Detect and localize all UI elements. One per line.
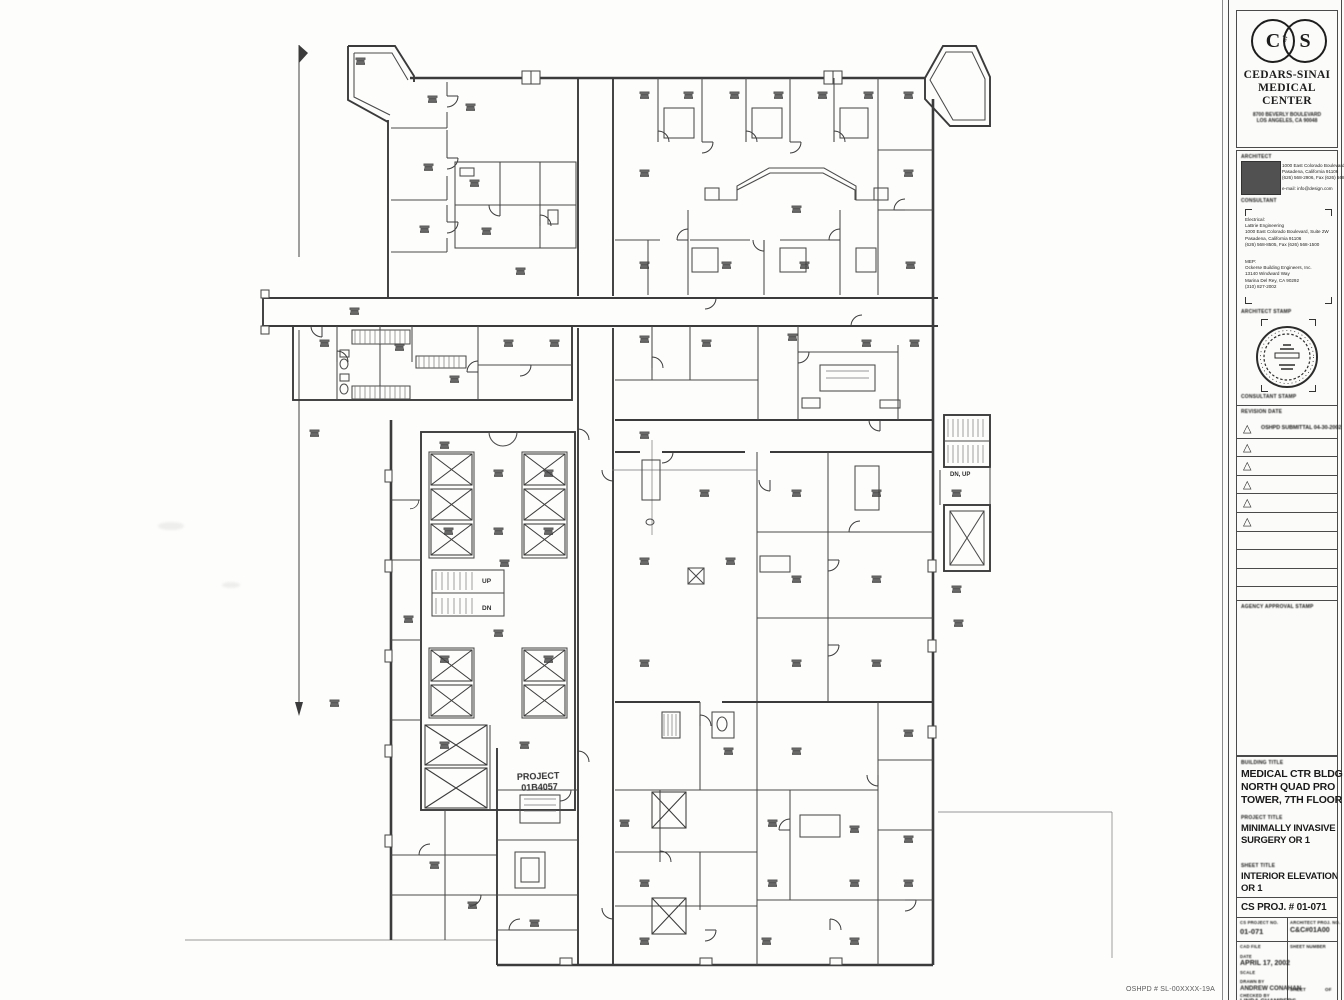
divider: [1237, 897, 1337, 898]
crop-tick: [1261, 385, 1268, 392]
architect-proj-no-value: C&C#01A00: [1290, 927, 1330, 934]
corridor-vertical: [578, 78, 613, 965]
sheet-divider-line: [1222, 0, 1223, 1000]
logo-box: C S ⚕ CEDARS-SINAI MEDICAL CENTER 8700 B…: [1236, 10, 1338, 148]
architect-box: ARCHITECT 1000 East Colorado Boulevard, …: [1236, 150, 1338, 407]
stair2-label: DN, UP: [950, 472, 970, 478]
architect-seal: [1253, 323, 1321, 391]
building-title-label: BUILDING TITLE: [1241, 760, 1283, 766]
cs-project-no-label: CS PROJECT NO.: [1240, 920, 1278, 925]
cs-project-no-value: 01-071: [1240, 927, 1263, 936]
sheet-title-label: SHEET TITLE: [1241, 863, 1275, 869]
revision-row: △: [1237, 457, 1337, 476]
title-block: C S ⚕ CEDARS-SINAI MEDICAL CENTER 8700 B…: [1222, 0, 1344, 1000]
revision-row: [1237, 532, 1337, 551]
revision-row: △: [1237, 494, 1337, 513]
crop-tick: [1245, 209, 1252, 216]
revision-row: △: [1237, 439, 1337, 458]
elevator-core: UP DN: [421, 432, 575, 810]
titles-box: BUILDING TITLE MEDICAL CTR BLDG NORTH QU…: [1236, 756, 1338, 1000]
sheet-label: SHEET: [1290, 987, 1306, 992]
project-stamp-line2: 01B4057: [521, 782, 558, 793]
revision-entry: OSHPD SUBMITTAL 04-30-2002: [1261, 425, 1341, 431]
hospital-name-line1: CEDARS-SINAI: [1237, 69, 1337, 82]
stair-up-label: UP: [482, 578, 492, 585]
sheet-title: INTERIOR ELEVATIONS OR 1: [1241, 871, 1337, 895]
stairwell-core: UP DN: [432, 570, 504, 616]
agency-approval-box: AGENCY APPROVAL STAMP: [1236, 600, 1338, 756]
sheet-number-label: SHEET NUMBER: [1290, 944, 1326, 949]
revision-triangle-icon: △: [1243, 422, 1251, 435]
revision-row: △ OSHPD SUBMITTAL 04-30-2002: [1237, 420, 1337, 439]
revision-box: REVISION DATE △ OSHPD SUBMITTAL 04-30-20…: [1236, 405, 1338, 602]
consultant-label: CONSULTANT: [1241, 198, 1277, 204]
right-annex: DN, UP: [940, 415, 990, 571]
oshpd-note: OSHPD # SL-00XXXX-19A: [1126, 986, 1215, 993]
project-title: MINIMALLY INVASIVE SURGERY OR 1: [1241, 823, 1335, 847]
revision-triangle-icon: △: [1243, 478, 1251, 491]
drawing-sheet: UP DN PROJECT: [0, 0, 1344, 1000]
hospital-address-line2: LOS ANGELES, CA 90048: [1237, 118, 1337, 125]
revision-row: [1237, 550, 1337, 569]
of-label: OF: [1325, 987, 1332, 992]
date-label: DATE: [1240, 954, 1252, 959]
divider: [1237, 941, 1337, 942]
upper-left-suite: [391, 82, 576, 252]
drawn-by-label: DRAWN BY: [1240, 979, 1264, 984]
site-walls: [185, 45, 1112, 958]
bottom-center-rooms: PROJECT 01B4057: [497, 748, 578, 965]
revision-table: △ OSHPD SUBMITTAL 04-30-2002 △ △ △ △ △: [1237, 420, 1337, 605]
revision-row: [1237, 569, 1337, 588]
architect-proj-no-label: ARCHITECT PROJ. NO.: [1290, 920, 1340, 925]
hospital-name-line2: MEDICAL CENTER: [1237, 82, 1337, 108]
nurse-station: [705, 168, 888, 200]
crop-tick: [1325, 209, 1332, 216]
project-title-label: PROJECT TITLE: [1241, 815, 1283, 821]
scale-label: SCALE: [1240, 970, 1255, 975]
cs-proj-number: CS PROJ. # 01-071: [1241, 902, 1327, 915]
building-title: MEDICAL CTR BLDG NORTH QUAD PRO TOWER, 7…: [1241, 768, 1343, 807]
revision-triangle-icon: △: [1243, 459, 1251, 472]
outer-walls: [348, 46, 990, 965]
room-labels: [310, 58, 963, 944]
agency-approval-label: AGENCY APPROVAL STAMP: [1241, 604, 1314, 610]
logo-circle-s: S: [1283, 19, 1327, 63]
date-value: APRIL 17, 2002: [1240, 960, 1290, 967]
architect-stamp-label: ARCHITECT STAMP: [1241, 309, 1291, 315]
west-locker-wing: [293, 326, 572, 400]
mid-right-wing: [615, 326, 933, 431]
crop-tick: [1245, 297, 1252, 304]
floor-plan: UP DN PROJECT: [0, 0, 1226, 1000]
titleblock-left-border: [1228, 0, 1229, 1000]
architect-label: ARCHITECT: [1241, 154, 1272, 160]
crop-tick: [1325, 297, 1332, 304]
consultant-electrical: Electrical: LaBrie Engineering 1000 East…: [1245, 217, 1329, 248]
service-elevator: [944, 505, 990, 571]
caduceus-icon: ⚕: [1282, 32, 1288, 45]
west-rooms: [391, 500, 497, 940]
upper-right-ward: [615, 78, 933, 295]
architect-address: 1000 East Colorado Boulevard, Suite 2W P…: [1282, 163, 1344, 192]
project-stamp-line1: PROJECT: [517, 771, 560, 782]
revision-date-label: REVISION DATE: [1241, 409, 1282, 415]
revision-row: △: [1237, 513, 1337, 532]
revision-triangle-icon: △: [1243, 496, 1251, 509]
titleblock-right-border: [1341, 0, 1342, 1000]
cad-file-label: CAD FILE: [1240, 944, 1261, 949]
revision-triangle-icon: △: [1243, 441, 1251, 454]
crop-tick: [1309, 385, 1316, 392]
revision-row: △: [1237, 476, 1337, 495]
architect-logo: [1241, 161, 1281, 195]
consultant-mep: MEP: Ockerse Building Engineers, Inc. 13…: [1245, 259, 1312, 290]
revision-triangle-icon: △: [1243, 515, 1251, 528]
stair-dn-label: DN: [482, 605, 492, 612]
consultant-stamp-label: CONSULTANT STAMP: [1241, 394, 1296, 400]
cedars-sinai-logo: C S ⚕: [1251, 19, 1323, 65]
